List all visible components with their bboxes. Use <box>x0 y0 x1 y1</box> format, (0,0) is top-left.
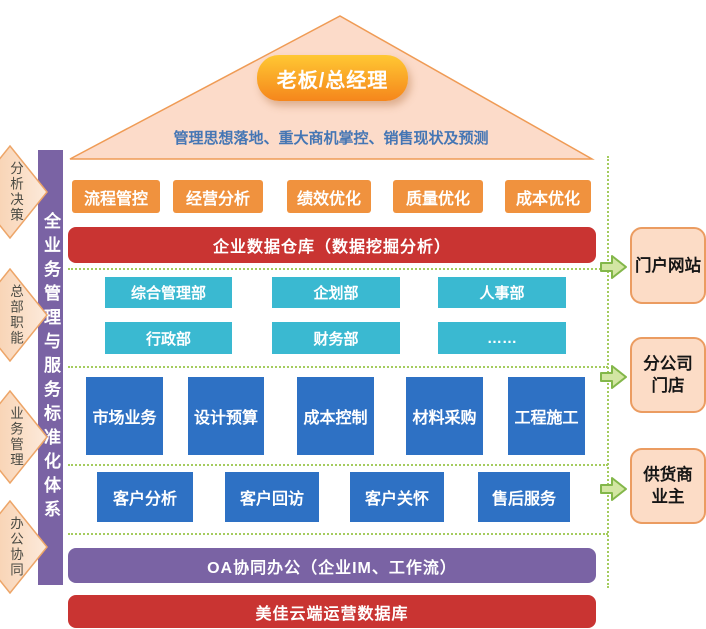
dotted-divider <box>68 533 608 535</box>
left-arrow-label: 办公协同 <box>3 509 27 585</box>
customer-box-analysis: 客户分析 <box>97 472 193 522</box>
customer-box-care: 客户关怀 <box>350 472 444 522</box>
left-arrow-label: 分析决策 <box>3 154 27 230</box>
left-arrow-analysis: 分析决策 <box>0 145 48 239</box>
kpi-box-operation: 经营分析 <box>173 180 263 213</box>
left-arrow-office: 办公协同 <box>0 500 48 594</box>
panel-label: 门户网站 <box>635 255 701 277</box>
business-box-design: 设计预算 <box>188 377 264 455</box>
roof-subtitle: 管理思想落地、重大商机掌控、销售现状及预测 <box>126 127 536 148</box>
dept-box-planning: 企划部 <box>272 277 400 308</box>
right-panel-portal: 门户网站 <box>630 227 706 304</box>
dept-box-more: …… <box>438 322 566 354</box>
customer-box-service: 售后服务 <box>478 472 570 522</box>
left-arrow-headquarters: 总部职能 <box>0 268 48 362</box>
cloud-db-bar: 美佳云端运营数据库 <box>68 595 596 628</box>
dotted-divider <box>68 268 608 270</box>
customer-box-revisit: 客户回访 <box>225 472 319 522</box>
right-panel-supplier: 供货商 业主 <box>630 448 706 524</box>
flow-arrow-right-icon <box>600 253 628 281</box>
business-box-cost-control: 成本控制 <box>297 377 374 455</box>
business-box-construction: 工程施工 <box>508 377 585 455</box>
flow-arrow-right-icon <box>600 475 628 503</box>
business-box-procurement: 材料采购 <box>406 377 483 455</box>
left-arrow-label: 业务管理 <box>3 399 27 475</box>
panel-label-line: 门店 <box>652 375 685 397</box>
dept-box-finance: 财务部 <box>272 322 400 354</box>
panel-label-line: 供货商 <box>643 464 693 486</box>
dotted-divider <box>68 464 608 466</box>
panel-label-line: 业主 <box>652 486 685 508</box>
business-box-market: 市场业务 <box>86 377 163 455</box>
dept-box-admin: 行政部 <box>105 322 232 354</box>
data-warehouse-bar: 企业数据仓库（数据挖掘分析） <box>68 227 596 263</box>
panel-label-line: 分公司 <box>643 353 693 375</box>
boss-box: 老板/总经理 <box>257 55 408 101</box>
kpi-box-process: 流程管控 <box>72 180 160 213</box>
oa-bar: OA协同办公（企业IM、工作流） <box>68 548 596 583</box>
dept-box-hr: 人事部 <box>438 277 566 308</box>
left-arrow-label: 总部职能 <box>3 277 27 353</box>
kpi-box-performance: 绩效优化 <box>287 180 371 213</box>
enterprise-architecture-diagram: 老板/总经理 管理思想落地、重大商机掌控、销售现状及预测 全业务管理与服务标准化… <box>0 0 706 629</box>
flow-arrow-right-icon <box>600 363 628 391</box>
left-arrow-business: 业务管理 <box>0 390 48 484</box>
kpi-box-cost: 成本优化 <box>505 180 591 213</box>
right-panel-branch: 分公司 门店 <box>630 337 706 413</box>
dept-box-general: 综合管理部 <box>105 277 232 308</box>
kpi-box-quality: 质量优化 <box>393 180 483 213</box>
dotted-divider <box>68 366 608 368</box>
